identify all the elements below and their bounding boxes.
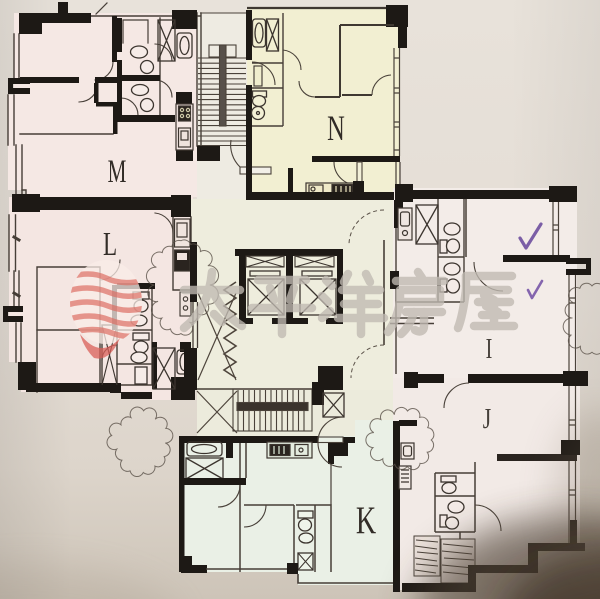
svg-text:K: K — [356, 500, 377, 542]
svg-text:I: I — [486, 334, 493, 365]
svg-text:N: N — [327, 108, 345, 148]
svg-text:M: M — [108, 152, 127, 189]
svg-text:J: J — [483, 402, 491, 435]
svg-text:L: L — [103, 226, 117, 263]
